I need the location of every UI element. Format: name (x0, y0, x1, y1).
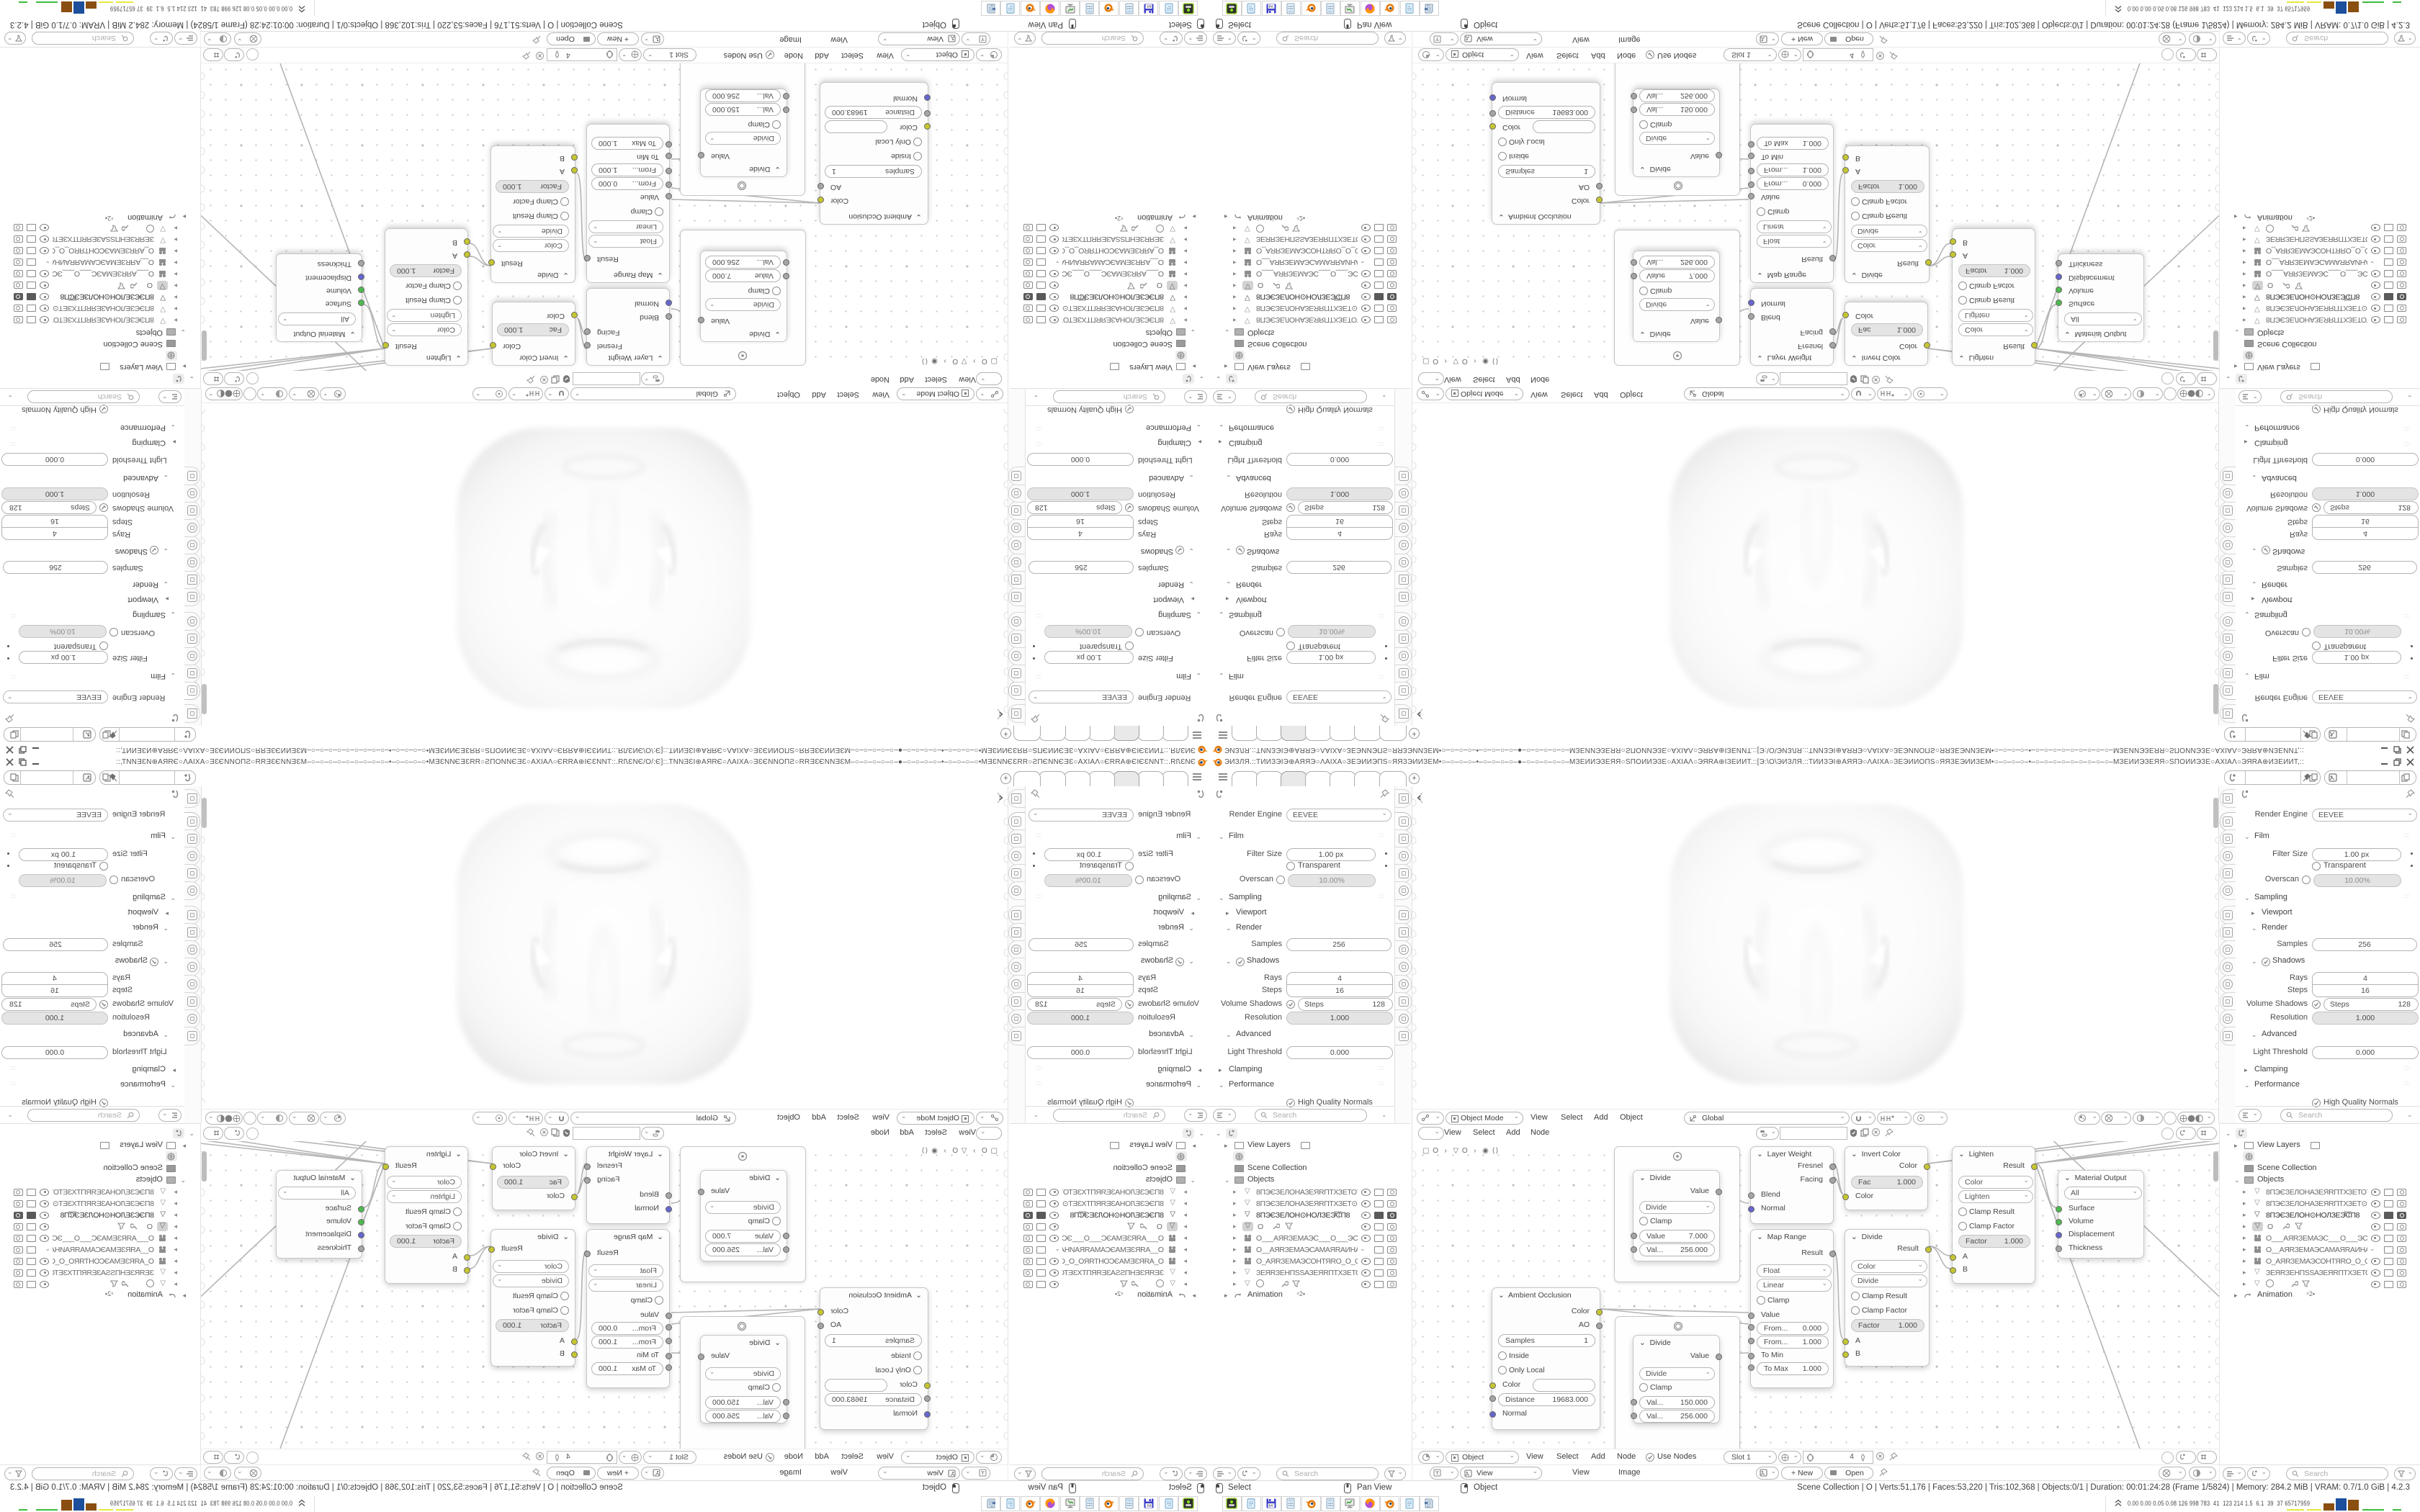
svg-text:64: 64 (1147, 4, 1152, 8)
svg-text:64: 64 (1268, 4, 1273, 8)
svg-text:64: 64 (1268, 1504, 1273, 1508)
svg-text:64: 64 (1147, 1504, 1152, 1508)
